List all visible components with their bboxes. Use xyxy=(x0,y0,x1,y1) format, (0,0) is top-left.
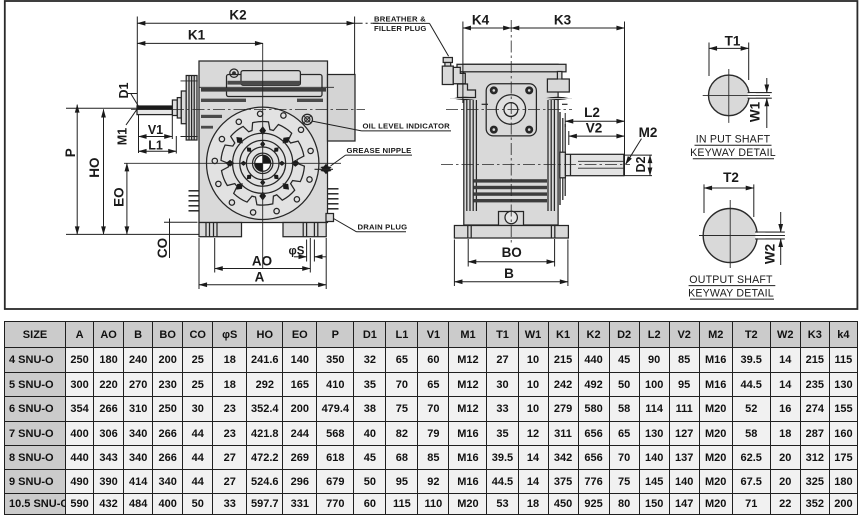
svg-text:EO: EO xyxy=(112,187,127,207)
svg-text:φS: φS xyxy=(289,246,305,258)
svg-text:HO: HO xyxy=(87,157,102,177)
svg-text:GREASE NIPPLE: GREASE NIPPLE xyxy=(347,146,412,155)
svg-text:W1: W1 xyxy=(748,101,763,122)
svg-text:D2: D2 xyxy=(634,156,648,172)
svg-text:V2: V2 xyxy=(586,120,603,135)
svg-text:CO: CO xyxy=(155,238,170,258)
svg-text:KEYWAY DETAIL: KEYWAY DETAIL xyxy=(690,147,776,159)
svg-text:AO: AO xyxy=(252,254,272,269)
svg-text:L2: L2 xyxy=(584,105,600,120)
svg-text:DRAIN PLUG: DRAIN PLUG xyxy=(358,223,408,232)
svg-text:K1: K1 xyxy=(188,28,206,43)
svg-text:T2: T2 xyxy=(723,170,739,185)
svg-text:V1: V1 xyxy=(148,123,163,137)
svg-text:W2: W2 xyxy=(763,244,778,264)
svg-text:B: B xyxy=(504,266,514,281)
svg-text:P: P xyxy=(63,148,78,157)
svg-text:M1: M1 xyxy=(116,128,130,145)
svg-text:KEYWAY DETAIL: KEYWAY DETAIL xyxy=(688,287,774,299)
svg-text:OIL LEVEL INDICATOR: OIL LEVEL INDICATOR xyxy=(363,122,451,131)
svg-text:FILLER PLUG: FILLER PLUG xyxy=(374,24,427,33)
svg-text:K2: K2 xyxy=(229,8,246,23)
svg-text:D1: D1 xyxy=(117,82,131,98)
svg-text:L1: L1 xyxy=(148,138,163,152)
svg-text:T1: T1 xyxy=(725,34,741,49)
svg-text:OUTPUT SHAFT: OUTPUT SHAFT xyxy=(689,274,773,286)
svg-text:IN PUT SHAFT: IN PUT SHAFT xyxy=(696,134,771,146)
svg-text:K4: K4 xyxy=(472,13,490,28)
svg-text:A: A xyxy=(255,269,265,284)
svg-text:BO: BO xyxy=(502,245,522,260)
svg-text:K3: K3 xyxy=(554,13,572,28)
svg-text:BREATHER &: BREATHER & xyxy=(374,14,426,23)
svg-text:M2: M2 xyxy=(639,125,658,140)
